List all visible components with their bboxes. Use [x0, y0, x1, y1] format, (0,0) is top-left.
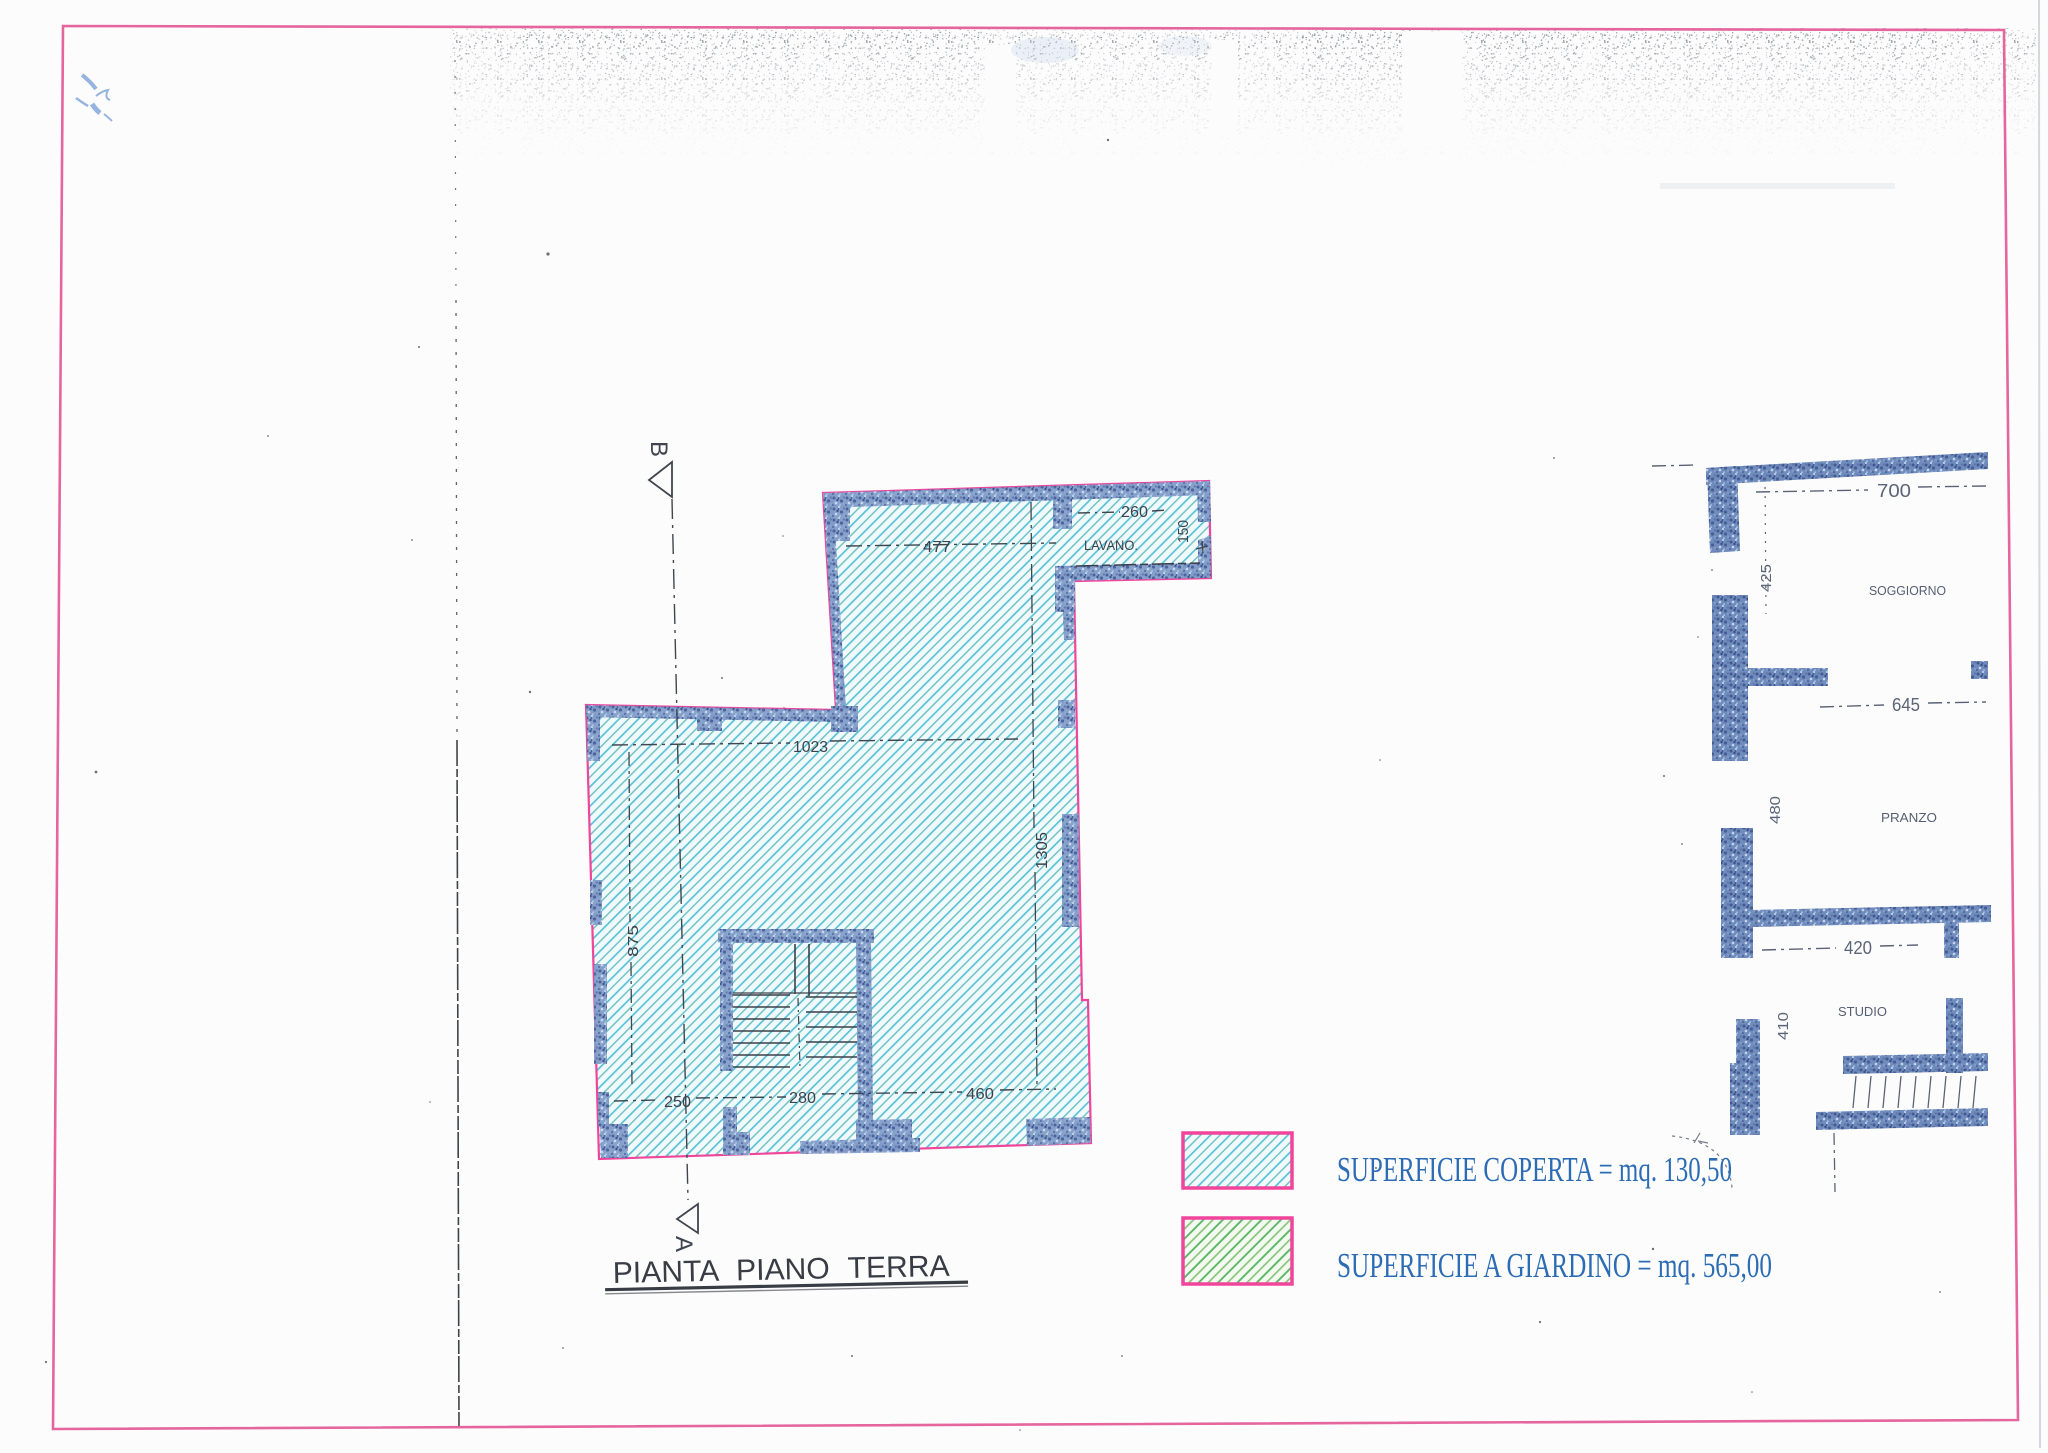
svg-text:260: 260: [1121, 504, 1148, 521]
svg-text:STUDIO: STUDIO: [1838, 1004, 1887, 1019]
svg-text:700: 700: [1877, 481, 1911, 501]
svg-text:477: 477: [923, 539, 951, 556]
svg-text:SUPERFICIE A GIARDINO = mq. 56: SUPERFICIE A GIARDINO = mq. 565,00: [1337, 1246, 1772, 1285]
svg-text:PRANZO: PRANZO: [1881, 810, 1937, 825]
svg-text:B: B: [645, 441, 672, 457]
svg-text:LAVANO.: LAVANO.: [1084, 537, 1138, 553]
svg-text:425: 425: [1758, 564, 1775, 592]
svg-text:150: 150: [1175, 520, 1192, 543]
svg-text:1305: 1305: [1034, 832, 1051, 869]
svg-text:460: 460: [966, 1086, 994, 1103]
svg-text:280: 280: [789, 1090, 816, 1107]
svg-text:420: 420: [1844, 938, 1872, 958]
svg-text:1023: 1023: [793, 739, 828, 756]
svg-text:A: A: [670, 1236, 697, 1252]
svg-text:250: 250: [664, 1094, 691, 1111]
svg-text:645: 645: [1892, 695, 1920, 715]
svg-text:SUPERFICIE COPERTA = mq. 130,5: SUPERFICIE COPERTA = mq. 130,50: [1337, 1150, 1732, 1189]
svg-text:410: 410: [1775, 1012, 1792, 1040]
svg-text:480: 480: [1767, 796, 1784, 824]
svg-text:875: 875: [625, 925, 642, 957]
svg-text:SOGGIORNO: SOGGIORNO: [1869, 583, 1946, 598]
